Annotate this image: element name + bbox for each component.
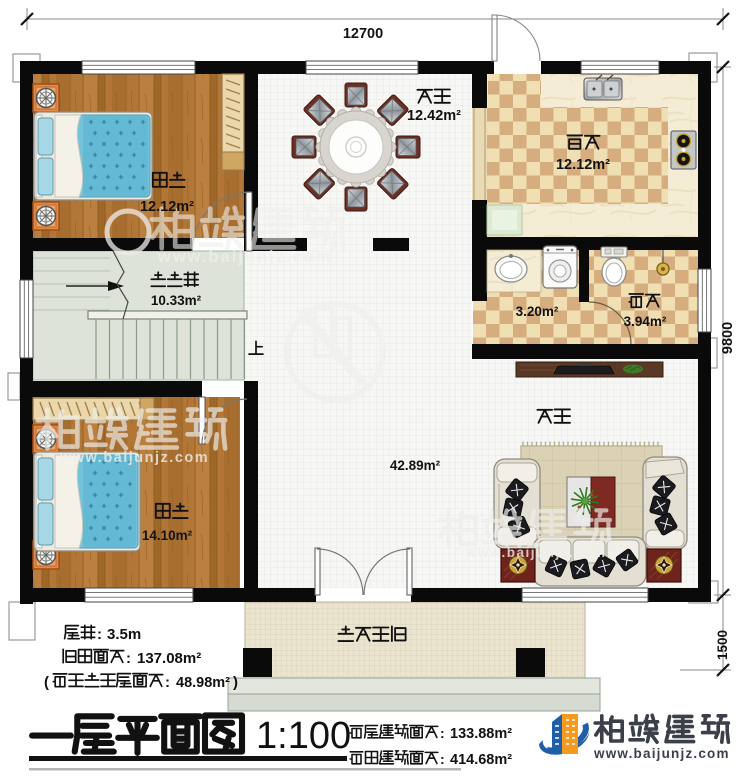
svg-text:10.33m²: 10.33m² [151, 293, 202, 308]
svg-text:14.10m²: 14.10m² [142, 528, 193, 543]
svg-text:1500: 1500 [715, 630, 730, 660]
svg-text:9800: 9800 [720, 322, 736, 354]
svg-text:414.68m²: 414.68m² [450, 752, 512, 768]
svg-text:12.12m²: 12.12m² [140, 199, 194, 215]
svg-text:42.89m²: 42.89m² [390, 458, 441, 473]
svg-text:www.baijunjz.com: www.baijunjz.com [593, 746, 730, 761]
svg-text:): ) [233, 674, 238, 691]
svg-text:12.42m²: 12.42m² [407, 108, 461, 124]
svg-text:1:100: 1:100 [256, 715, 351, 757]
svg-text:3.94m²: 3.94m² [624, 314, 667, 329]
svg-text:3.5m: 3.5m [107, 626, 141, 643]
svg-text:12700: 12700 [343, 26, 383, 42]
svg-text::: : [97, 626, 102, 643]
svg-text:(: ( [44, 674, 49, 691]
svg-text:www.baijunjz.com: www.baijunjz.com [157, 248, 332, 266]
svg-text:www.baijunjz.com: www.baijunjz.com [465, 545, 607, 560]
svg-text:12.12m²: 12.12m² [556, 157, 610, 173]
svg-text:137.08m²: 137.08m² [137, 650, 201, 667]
svg-text:48.98m²: 48.98m² [176, 675, 230, 691]
svg-text:133.88m²: 133.88m² [450, 726, 512, 742]
svg-text::: : [440, 751, 445, 767]
svg-text::: : [440, 725, 445, 741]
svg-text:3.20m²: 3.20m² [516, 304, 559, 319]
svg-text::: : [126, 650, 131, 667]
svg-text:www.baijunjz.com: www.baijunjz.com [59, 450, 209, 466]
svg-text::: : [165, 674, 170, 691]
